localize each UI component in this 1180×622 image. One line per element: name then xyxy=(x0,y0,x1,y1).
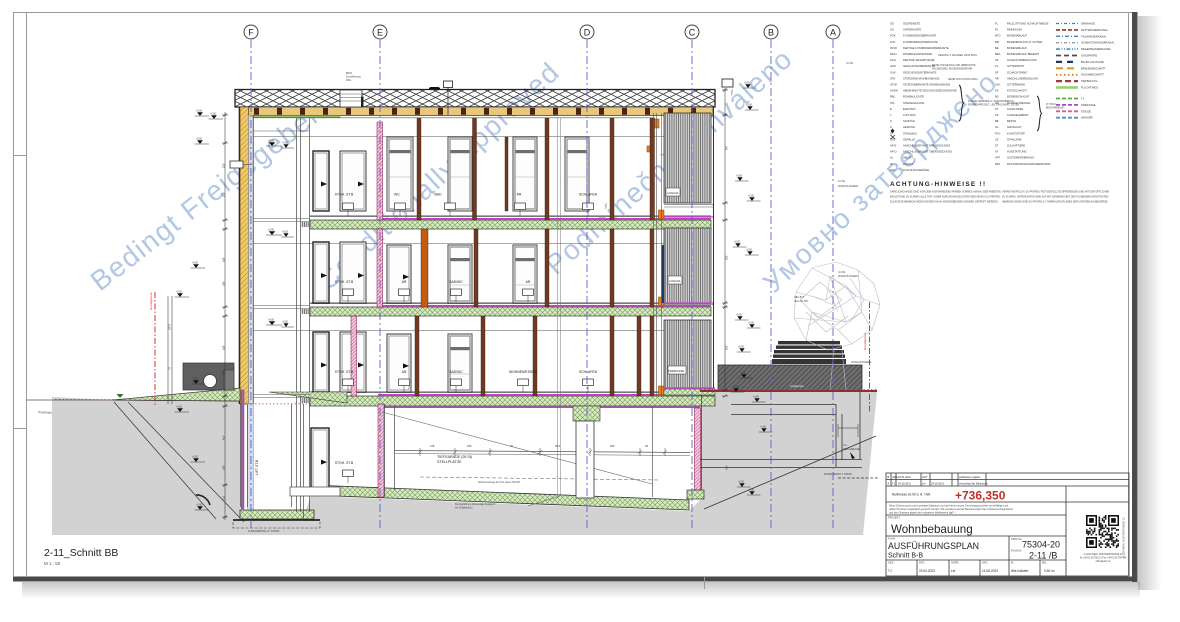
svg-text:285: 285 xyxy=(221,192,225,197)
svg-text:Urgelände: Urgelände xyxy=(38,410,52,415)
svg-text:299: 299 xyxy=(221,281,225,286)
svg-text:FERTIGE FUSSBODENOBERKANTE: FERTIGE FUSSBODENOBERKANTE xyxy=(903,46,949,50)
svg-text:FALZLÜFTUNG SCHACHTWEISE: FALZLÜFTUNG SCHACHTWEISE xyxy=(1007,22,1049,26)
svg-text:EINREICHPROJEKT, LEISTUNGSVERZ: EINREICHPROJEKT, LEISTUNGSVERZ. LISTEN xyxy=(968,105,1019,107)
svg-text:Grundgrenze: Grundgrenze xyxy=(149,292,153,310)
svg-text:UNTERKANTE: UNTERKANTE xyxy=(903,28,921,32)
svg-text:MD.:: MD.: xyxy=(1042,561,1048,565)
svg-text:B: B xyxy=(888,475,890,479)
svg-text:TE: TE xyxy=(995,113,999,117)
svg-text:STL: STL xyxy=(890,101,895,105)
svg-text:2-11 /B: 2-11 /B xyxy=(1029,551,1057,561)
svg-text:DACHABSCHNITT: DACHABSCHNITT xyxy=(1081,73,1104,77)
svg-text:TERRASSE: TERRASSE xyxy=(668,369,684,373)
svg-text:LOGGIA: LOGGIA xyxy=(669,279,681,283)
svg-text:24.10.2021: 24.10.2021 xyxy=(898,482,912,486)
svg-text:ABSCHLUSSREGELUNG: ABSCHLUSSREGELUNG xyxy=(1007,76,1038,80)
svg-text:mit Gefällebeton: mit Gefällebeton xyxy=(455,506,473,509)
svg-text:Urgelände: Urgelände xyxy=(790,384,804,388)
svg-text:TERRASSE: TERRASSE xyxy=(1081,103,1096,107)
svg-text:AP-O: AP-O xyxy=(890,150,897,154)
svg-text:PLAN.Nr:: PLAN.Nr: xyxy=(1011,549,1022,553)
svg-text:Wie indiziert: Wie indiziert xyxy=(1011,569,1028,573)
svg-text:ABWEICHUNGEN SIND ZU PRÜFEN LT: ABWEICHUNGEN SIND ZU PRÜFEN LT. NORMALRI… xyxy=(1002,201,1108,204)
svg-text:FGH: FGH xyxy=(890,58,896,62)
svg-text:BAD/WC: BAD/WC xyxy=(449,370,463,374)
svg-text:+0.00: +0.00 xyxy=(192,456,199,458)
svg-text:WOHNUNGEN: WOHNUNGEN xyxy=(851,360,871,364)
svg-text:GOK: GOK xyxy=(890,64,896,68)
svg-text:HEIZUNG: HEIZUNG xyxy=(903,125,915,129)
svg-text:AR: AR xyxy=(517,193,522,197)
svg-text:FUK: FUK xyxy=(890,40,896,44)
svg-text:ZL: ZL xyxy=(890,162,894,166)
svg-text:GL: GL xyxy=(995,125,999,129)
svg-text:+0.00: +0.00 xyxy=(738,346,745,348)
svg-text:BODENABLAUF: BODENABLAUF xyxy=(1007,46,1027,50)
svg-text:ZT: ZT xyxy=(995,144,999,148)
svg-text:PROJEKT:: PROJEKT: xyxy=(888,516,901,520)
svg-text:BAD/WC: BAD/WC xyxy=(449,280,463,284)
svg-text:AUSTEMPERIERUNG: AUSTEMPERIERUNG xyxy=(1007,156,1034,160)
svg-text:ZULAUFTIEFE: ZULAUFTIEFE xyxy=(1007,144,1025,148)
svg-text:GUK: GUK xyxy=(890,70,896,74)
svg-text:RBL: RBL xyxy=(890,95,896,99)
svg-text:FLUCHTWEG: FLUCHTWEG xyxy=(1081,86,1098,90)
svg-text:STOK: STOK xyxy=(890,83,897,87)
svg-text:AP-E: AP-E xyxy=(890,144,896,148)
svg-text:GRE: GRE xyxy=(892,475,898,479)
svg-text:GEFÄLLE: GEFÄLLE xyxy=(903,137,915,141)
svg-text:+0.00: +0.00 xyxy=(736,175,743,177)
svg-text:WM: WM xyxy=(995,162,1001,166)
svg-text:PLAN:: PLAN: xyxy=(888,537,896,541)
svg-text:907: 907 xyxy=(724,145,728,150)
svg-text:A-1234 WIEN, MUSTERSTRASSE 12: A-1234 WIEN, MUSTERSTRASSE 12 xyxy=(1084,553,1124,556)
svg-text:BODENABLAUF BEHEIZT: BODENABLAUF BEHEIZT xyxy=(1007,52,1039,56)
svg-text:+0.00: +0.00 xyxy=(192,378,199,380)
svg-text:STELLPLÄTZE: STELLPLÄTZE xyxy=(437,460,462,464)
svg-text:+0.00: +0.00 xyxy=(738,481,745,483)
svg-text:GEORDNETE: GEORDNETE xyxy=(903,22,920,26)
svg-text:FUNDAMENTU.T. STATIK: FUNDAMENTU.T. STATIK xyxy=(824,473,852,476)
svg-text:KT: KT xyxy=(995,107,999,111)
svg-text:20.04.2023: 20.04.2023 xyxy=(919,569,935,573)
svg-text:FOK: FOK xyxy=(890,34,896,38)
svg-text:0.50 m²: 0.50 m² xyxy=(1044,569,1055,573)
svg-text:BS: BS xyxy=(995,95,999,99)
svg-text:STAHLBAU: STAHLBAU xyxy=(903,131,917,135)
svg-text:FUSSBODENOBERKANTE: FUSSBODENOBERKANTE xyxy=(903,34,937,38)
svg-text:SCHMUTZWASSERKANAL: SCHMUTZWASSERKANAL xyxy=(1081,41,1115,45)
svg-text:PUTZSCHACHT: PUTZSCHACHT xyxy=(1007,89,1027,93)
svg-text:ZU KLÄREN. UNTERKANTEN SIND AU: ZU KLÄREN. UNTERKANTEN SIND AUF MIT GENE… xyxy=(1002,196,1109,199)
svg-text:305: 305 xyxy=(724,345,728,350)
svg-text:FFOK: FFOK xyxy=(890,46,897,50)
svg-text:AGDH: AGDH xyxy=(890,89,898,93)
svg-text:UK: UK xyxy=(890,28,894,32)
svg-text:STIEGE: STIEGE xyxy=(1081,109,1091,113)
svg-text:AR: AR xyxy=(995,76,999,80)
svg-text:STGH. ST.B: STGH. ST.B xyxy=(335,461,354,465)
svg-text:REINIGUNG: REINIGUNG xyxy=(1007,28,1022,32)
svg-text:AL: AL xyxy=(890,156,894,160)
svg-text:2.OG: 2.OG xyxy=(838,179,846,183)
svg-text:SF: SF xyxy=(995,70,999,74)
svg-text:GE: GE xyxy=(890,22,894,26)
svg-text:Umschlag Var Dachstuhl.: Umschlag Var Dachstuhl. xyxy=(959,482,988,486)
svg-text:+0.00: +0.00 xyxy=(268,319,275,321)
svg-text:GEZ.:: GEZ.: xyxy=(888,561,895,565)
svg-text:AT: AT xyxy=(995,150,999,154)
svg-text:ABLUFT: ABLUFT xyxy=(903,156,914,160)
svg-text:+0.00: +0.00 xyxy=(196,504,203,506)
svg-text:TAUWASSERKANAL: TAUWASSERKANAL xyxy=(1081,34,1107,38)
svg-text:Aufbauten ergänzt.: Aufbauten ergänzt. xyxy=(959,475,981,479)
svg-text:+0.00: +0.00 xyxy=(748,489,755,491)
svg-text:ABGEHÄNGTE GESCHOSSDECKENHÖHE: ABGEHÄNGTE GESCHOSSDECKENHÖHE xyxy=(903,89,957,93)
svg-text:TAGESELEMENT: TAGESELEMENT xyxy=(1007,113,1029,117)
svg-text:BEA: BEA xyxy=(995,52,1001,56)
svg-text:+0.00: +0.00 xyxy=(746,249,753,251)
svg-text:FL: FL xyxy=(995,22,999,26)
svg-text:22.01.2021: 22.01.2021 xyxy=(898,475,912,479)
svg-text:ANSCHLUSSPUNKT ERDGESCHOSS: ANSCHLUSSPUNKT ERDGESCHOSS xyxy=(903,144,950,148)
svg-text:DAT.:: DAT.: xyxy=(982,561,988,565)
svg-text:A: A xyxy=(830,28,836,38)
svg-text:DAT.:: DAT.: xyxy=(919,561,925,565)
svg-text:ATP: ATP xyxy=(995,156,1000,160)
svg-text:FETTWASSERKANAL: FETTWASSERKANAL xyxy=(1081,28,1109,32)
svg-text:ROHBAULICHTE: ROHBAULICHTE xyxy=(903,95,924,99)
svg-text:299: 299 xyxy=(221,370,225,375)
svg-text:ZULUFT: ZULUFT xyxy=(903,162,914,166)
svg-text:ACHTUNG-HINWEISE !!: ACHTUNG-HINWEISE !! xyxy=(890,181,986,188)
svg-text:SZ: SZ xyxy=(995,137,999,141)
svg-text:und des Gesetzes gegen den unl: und des Gesetzes gegen den unlauteren We… xyxy=(889,511,956,514)
svg-text:KANALTIEFE: KANALTIEFE xyxy=(1007,107,1023,111)
svg-text:RK/H: RK/H xyxy=(890,52,896,56)
svg-text:VERANTWORTLICH: ZU PRÜFEN, FES: VERANTWORTLICH: ZU PRÜFEN, FESTGESTELLTE… xyxy=(1002,191,1109,194)
svg-text:420: 420 xyxy=(724,465,728,470)
svg-text:B: B xyxy=(768,28,774,38)
svg-text:FERTIGE GESAMTHÖHE: FERTIGE GESAMTHÖHE xyxy=(903,58,935,62)
svg-text:24.10.2021: 24.10.2021 xyxy=(931,482,945,486)
svg-text:SANITÄR: SANITÄR xyxy=(903,119,915,123)
svg-text:FUNDAMENTE LT. STATIK: FUNDAMENTE LT. STATIK xyxy=(248,529,280,533)
svg-text:+0.00: +0.00 xyxy=(176,406,183,408)
svg-text:STGH. ST.B: STGH. ST.B xyxy=(335,370,354,374)
svg-text:Wohnbebauung: Wohnbebauung xyxy=(891,523,973,536)
svg-text:BODENSCHACHT: BODENSCHACHT xyxy=(1007,95,1030,99)
svg-text:E: E xyxy=(377,28,383,38)
svg-text:SIEHE VON STÜVOS DOKU: SIEHE VON STÜVOS DOKU xyxy=(948,78,978,81)
svg-text:PS: PS xyxy=(995,89,999,93)
svg-text:FÜR DIE GEWERKE LT. AUSSCHREIB: FÜR DIE GEWERKE LT. AUSSCHREIBUNG xyxy=(968,100,1014,103)
svg-text:BE: BE xyxy=(995,46,999,50)
svg-text:+0.00: +0.00 xyxy=(744,82,751,84)
svg-text:LRH: LRH xyxy=(890,168,895,172)
svg-text:BESCHREIBUNG: BESCHREIBUNG xyxy=(1046,108,1065,110)
svg-text:306: 306 xyxy=(221,345,225,350)
svg-text:LIFT ST.B: LIFT ST.B xyxy=(255,459,259,475)
svg-text:WDs: WDs xyxy=(346,79,352,82)
svg-text:+0.00: +0.00 xyxy=(282,321,289,323)
svg-text:+0.00: +0.00 xyxy=(748,322,755,324)
svg-text:3273: 3273 xyxy=(168,324,172,330)
svg-text:M 1 : 50: M 1 : 50 xyxy=(44,561,61,566)
svg-text:+0.00: +0.00 xyxy=(268,140,275,142)
svg-text:82.5: 82.5 xyxy=(555,444,561,448)
svg-text:A-1234 WIEN, MUSTERSTRASSE 12: A-1234 WIEN, MUSTERSTRASSE 12 xyxy=(1123,517,1126,558)
svg-text:F: F xyxy=(248,28,254,38)
svg-text:LÜFTUNG: LÜFTUNG xyxy=(903,113,916,117)
svg-text:Lei: Lei xyxy=(951,569,956,573)
svg-text:SCHACHTFANG: SCHACHTFANG xyxy=(1007,70,1027,74)
svg-text:200: 200 xyxy=(467,444,472,448)
svg-text:320: 320 xyxy=(221,163,225,168)
svg-text:DACHGESIMS, REGENSINNENROHR: DACHGESIMS, REGENSINNENROHR xyxy=(932,68,973,71)
svg-text:200: 200 xyxy=(610,444,615,448)
svg-text:STH: STH xyxy=(890,76,895,80)
svg-text:450: 450 xyxy=(221,435,225,440)
svg-text:Lei: Lei xyxy=(922,482,926,486)
svg-text:+0.00: +0.00 xyxy=(753,396,760,398)
svg-text:STGH. ST.B: STGH. ST.B xyxy=(335,193,354,197)
svg-text:LOGGIA: LOGGIA xyxy=(667,191,679,195)
svg-text:BTO: BTO xyxy=(995,34,1000,38)
svg-text:275: 275 xyxy=(430,444,435,448)
svg-text:ANSCHLUSSPUNKT OBERGESCHOSS: ANSCHLUSSPUNKT OBERGESCHOSS xyxy=(903,150,952,154)
svg-text:TJ: TJ xyxy=(888,569,892,573)
svg-text:TA: TA xyxy=(995,64,998,68)
svg-text:DRAINAGE: DRAINAGE xyxy=(1081,22,1095,26)
svg-text:GASSPARTE: GASSPARTE xyxy=(1081,54,1097,58)
svg-text:SCHLAFEN: SCHLAFEN xyxy=(579,370,598,374)
svg-text:STIEGENLICHTE: STIEGENLICHTE xyxy=(903,101,925,105)
svg-text:Tel +43-01-00 TBS.0 | Fax +4: Tel +43-01-00 TBS.0 | Fax +43-01-00 TIB-… xyxy=(1079,557,1127,559)
svg-text:BODENABLAUF: BODENABLAUF xyxy=(1007,34,1027,38)
svg-text:Nullniveau ±0.00 ü. A. / NN: Nullniveau ±0.00 ü. A. / NN xyxy=(892,493,931,497)
svg-text:+0.00: +0.00 xyxy=(732,386,739,388)
svg-text:A: A xyxy=(888,482,890,486)
svg-text:WC: WC xyxy=(394,193,400,197)
svg-text:S: S xyxy=(890,119,892,123)
svg-text:TIEFBAULTG.: TIEFBAULTG. xyxy=(1081,79,1098,83)
svg-text:+0.00: +0.00 xyxy=(282,231,289,233)
svg-text:+0.00: +0.00 xyxy=(734,241,741,243)
svg-text:+0.00: +0.00 xyxy=(210,113,217,115)
svg-text:E: E xyxy=(890,107,892,111)
svg-text:14.08.2023: 14.08.2023 xyxy=(982,569,998,573)
svg-text:HGT: HGT xyxy=(922,475,928,479)
svg-text:BRANDABSCHNITT: BRANDABSCHNITT xyxy=(1081,66,1106,70)
svg-text:office@arch.at: office@arch.at xyxy=(1096,560,1111,563)
svg-text:BE: BE xyxy=(995,119,999,123)
svg-text:STÜRZÖHE (ROHBAUMASS): STÜRZÖHE (ROHBAUMASS) xyxy=(903,76,940,80)
svg-text:ELEKTRO: ELEKTRO xyxy=(903,107,916,111)
svg-text:+0.00: +0.00 xyxy=(760,426,767,428)
svg-text:+736,350: +736,350 xyxy=(955,489,1006,503)
svg-text:ROHBAUKANTE/HÖHE: ROHBAUKANTE/HÖHE xyxy=(903,52,932,56)
svg-text:FUSSBODENUNTERKANTE: FUSSBODENUNTERKANTE xyxy=(903,40,938,44)
svg-text:GEMÄSS LT. ANGABEN LISTE PROJ.: GEMÄSS LT. ANGABEN LISTE PROJ. xyxy=(938,54,978,57)
svg-text:WASSER: WASSER xyxy=(1081,116,1093,120)
svg-text:3.OG: 3.OG xyxy=(846,61,854,65)
svg-text:GEF: GEF xyxy=(890,137,896,141)
svg-text:WOHNUNGEN: WOHNUNGEN xyxy=(838,274,858,278)
svg-text:C: C xyxy=(689,28,696,38)
svg-text:+0.00: +0.00 xyxy=(196,110,203,112)
svg-text:BETON: BETON xyxy=(1007,119,1016,123)
svg-text:über W. BK: über W. BK xyxy=(794,299,808,303)
svg-text:LT. PROJ.: LT. PROJ. xyxy=(1046,104,1057,106)
svg-text:GESCHOSSOBERKANTE: GESCHOSSOBERKANTE xyxy=(903,64,935,68)
svg-text:AUSSTATTUNG: AUSSTATTUNG xyxy=(1007,150,1027,154)
svg-text:BAD: BAD xyxy=(435,193,443,197)
svg-text:75304-20: 75304-20 xyxy=(1022,540,1060,550)
svg-text:306: 306 xyxy=(221,257,225,262)
svg-text:+0.00: +0.00 xyxy=(740,372,747,374)
svg-text:+0.00: +0.00 xyxy=(736,314,743,316)
svg-text:GESCHOSSUNTERKANTE: GESCHOSSUNTERKANTE xyxy=(903,70,937,74)
svg-text:STAHLZINK: STAHLZINK xyxy=(1007,137,1022,141)
svg-text:STURZOBERKANTE (ROHBAUMASS): STURZOBERKANTE (ROHBAUMASS) xyxy=(903,83,950,87)
svg-text:D: D xyxy=(584,28,591,38)
svg-text:299: 299 xyxy=(221,465,225,470)
svg-text:REGENWASSERKANAL: REGENWASSERKANAL xyxy=(1081,47,1111,51)
svg-text:SCHLAFEN: SCHLAFEN xyxy=(579,193,598,197)
svg-text:+0.00: +0.00 xyxy=(196,138,203,140)
svg-text:AR: AR xyxy=(402,370,407,374)
svg-text:KUNSTSTOFF: KUNSTSTOFF xyxy=(1007,131,1025,135)
svg-text:M.:: M.: xyxy=(1011,561,1015,565)
svg-text:PVC: PVC xyxy=(995,131,1001,135)
svg-text:305: 305 xyxy=(724,255,728,260)
svg-text:H: H xyxy=(890,125,892,129)
svg-text:SCHACHTABDECKUNG: SCHACHTABDECKUNG xyxy=(1007,58,1037,62)
svg-text:WOHNUNGEN: WOHNUNGEN xyxy=(838,184,858,188)
svg-text:BAUFLUCHTLINIE: BAUFLUCHTLINIE xyxy=(1081,60,1104,64)
svg-text:GW: GW xyxy=(995,83,1000,87)
svg-text:GEPR.:: GEPR.: xyxy=(951,561,960,565)
svg-text:RÜCKSPÜRUNGSWASSERSTAND: RÜCKSPÜRUNGSWASSERSTAND xyxy=(1007,162,1050,166)
svg-text:+0.00: +0.00 xyxy=(268,229,275,231)
svg-text:ZULÄSSIGE ABWEICHUNGEN MÜSSEN: ZULÄSSIGE ABWEICHUNGEN MÜSSEN NACH MASSG… xyxy=(890,201,999,204)
svg-text:AR: AR xyxy=(526,280,531,284)
svg-text:2-11_Schnitt BB: 2-11_Schnitt BB xyxy=(44,548,118,559)
svg-text:Schrammwange für Fzre Quern 5%: Schrammwange für Fzre Quern 5% Diff. xyxy=(478,481,521,484)
svg-text:+0.00: +0.00 xyxy=(282,142,289,144)
svg-text:112: 112 xyxy=(221,495,225,500)
svg-text:RL: RL xyxy=(995,28,999,32)
svg-text:+0.00: +0.00 xyxy=(176,291,183,293)
svg-text:TIEFGARAGE (26 St): TIEFGARAGE (26 St) xyxy=(437,455,472,459)
svg-text:BAULEITUNG ZU KLÄREN. ALLE TÜR: BAULEITUNG ZU KLÄREN. ALLE TÜR- SOWIE DU… xyxy=(890,196,1001,199)
svg-text:AR: AR xyxy=(402,280,407,284)
svg-text:TIEFGARAGE: TIEFGARAGE xyxy=(843,447,860,451)
svg-text:+0.00: +0.00 xyxy=(192,262,199,264)
svg-text:GRANULAT: GRANULAT xyxy=(1007,125,1022,129)
svg-text:SÄMTLICHE MASSE SIND VOR DEM A: SÄMTLICHE MASSE SIND VOR DEM AUSFÜHRENDE… xyxy=(890,191,1001,194)
svg-text:SIEHE VOR DETAILS UND ÜBERSICH: SIEHE VOR DETAILS UND ÜBERSICHTE xyxy=(932,64,976,67)
svg-text:BODENEINLAUF M. GITTER: BODENEINLAUF M. GITTER xyxy=(1007,40,1042,44)
svg-text:SA: SA xyxy=(995,58,999,62)
svg-text:I.O.: I.O. xyxy=(843,443,847,447)
svg-text:AUSFÜHRUNGSPLAN: AUSFÜHRUNGSPLAN xyxy=(888,541,979,551)
svg-text:+0.00: +0.00 xyxy=(748,195,755,197)
svg-text:LICHTE RAUMHÖHE: LICHTE RAUMHÖHE xyxy=(903,168,929,172)
svg-text:GITTERROST: GITTERROST xyxy=(1007,64,1025,68)
svg-text:GITTERWAND: GITTERWAND xyxy=(1007,83,1025,87)
svg-text:Schnitt B-B: Schnitt B-B xyxy=(888,553,923,560)
svg-text:+0.00: +0.00 xyxy=(746,104,753,106)
svg-text:WOHNEN/ESSEN: WOHNEN/ESSEN xyxy=(509,370,537,374)
svg-text:STGH. ST.B: STGH. ST.B xyxy=(335,280,354,284)
